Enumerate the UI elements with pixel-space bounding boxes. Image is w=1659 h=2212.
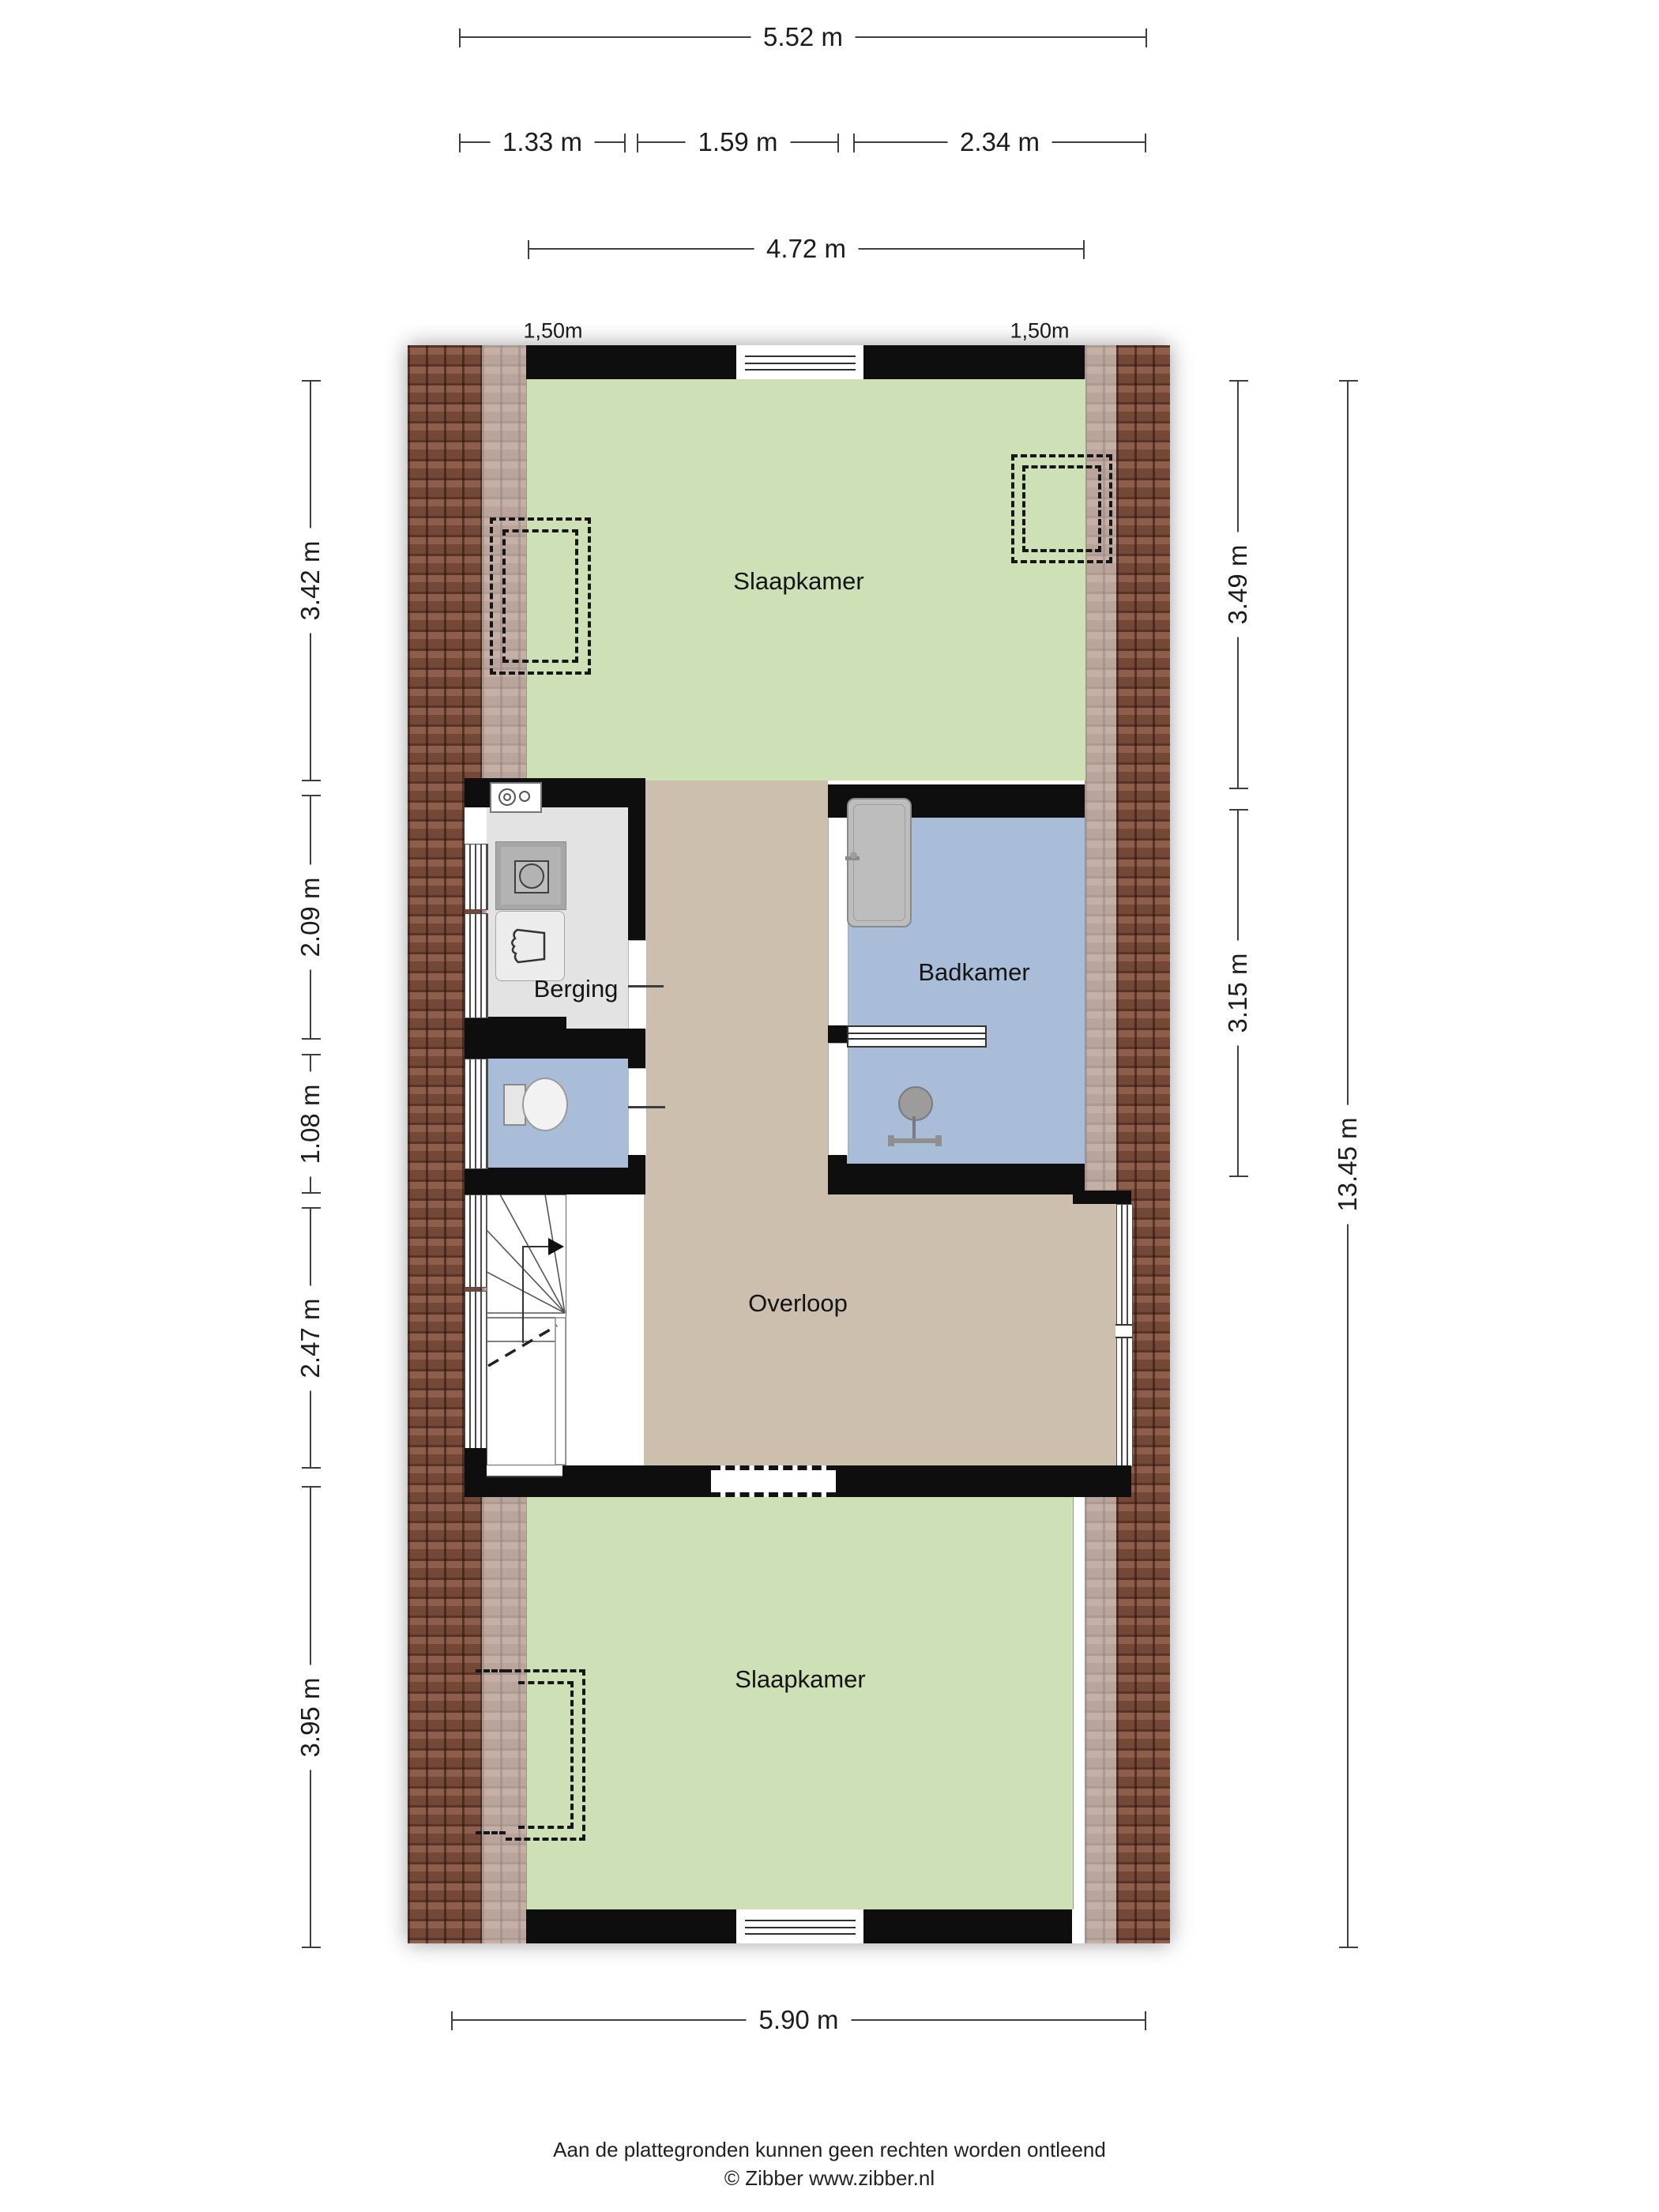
dimension-top-seg2: 1.59 m — [637, 141, 839, 143]
door-swing-line — [628, 1106, 665, 1108]
wall-bottom-right — [863, 1909, 1072, 1943]
dormer-dashed-outline — [518, 1681, 574, 1829]
laundry-basket-icon — [495, 911, 565, 981]
footer-disclaimer: Aan de plattegronden kunnen geen rechten… — [0, 2138, 1659, 2162]
dormer-dashed-outline — [502, 529, 578, 663]
room-landing-bay — [828, 1194, 1118, 1465]
dimension-right-total: 13.45 m — [1347, 380, 1349, 1948]
window-icon — [465, 1291, 488, 1450]
wall-bathroom-left-stub — [828, 1025, 847, 1043]
dimension-bottom: 5.90 m — [451, 2019, 1146, 2021]
dimension-left-2: 2.09 m — [310, 795, 311, 1040]
wall-left-corner — [465, 1448, 487, 1497]
dimension-left-3: 1.08 m — [310, 1054, 311, 1194]
room-label-landing: Overloop — [748, 1289, 848, 1318]
room-landing-main — [644, 781, 828, 1465]
height-mark-right: 1,50m — [1010, 319, 1069, 344]
window-glass — [745, 355, 856, 371]
dormer-dashed-outline — [1022, 465, 1101, 552]
room-label-bathroom: Badkamer — [918, 958, 1029, 987]
footer-copyright: © Zibber www.zibber.nl — [0, 2166, 1659, 2191]
dimension-label: 5.52 m — [750, 21, 856, 54]
dimension-top-seg1: 1.33 m — [459, 141, 626, 143]
stairs-icon — [487, 1194, 566, 1465]
shower-faucet-icon — [891, 1138, 937, 1143]
wall-bathroom-bottom — [828, 1164, 1085, 1194]
height-mark-left: 1,50m — [523, 319, 582, 344]
dimension-left-5: 3.95 m — [310, 1486, 311, 1948]
window-icon — [736, 1909, 863, 1943]
dimension-top-seg3: 2.34 m — [853, 141, 1146, 143]
dimension-label: 3.49 m — [1221, 532, 1255, 638]
dimension-label: 3.42 m — [294, 529, 327, 634]
dimension-label: 3.95 m — [294, 1665, 327, 1770]
dimension-label: 13.45 m — [1331, 1104, 1364, 1224]
room-label-bedroom-top: Slaapkamer — [733, 567, 863, 596]
dimension-label: 2.09 m — [294, 865, 327, 970]
dimension-left-4: 2.47 m — [310, 1207, 311, 1469]
wall-stairs-top — [465, 1168, 645, 1194]
wall-wc-top-left — [465, 1017, 566, 1059]
shower-arm — [912, 1116, 916, 1138]
dimension-label: 1.08 m — [294, 1071, 327, 1176]
wall-wc-top-right — [566, 1029, 645, 1059]
floorplan-canvas: 5.52 m 1.33 m 1.59 m 2.34 m 4.72 m 1,50m… — [0, 0, 1659, 2212]
dimension-label: 5.90 m — [747, 2003, 852, 2037]
door-handle-icon — [850, 852, 857, 859]
wall-top-right — [863, 345, 1085, 379]
roof-tiles-right-dark — [1116, 345, 1170, 1943]
dormer-dash-tail — [476, 1831, 506, 1834]
room-label-storage: Berging — [534, 975, 619, 1003]
toilet-icon — [522, 1078, 568, 1131]
washing-machine-icon — [495, 841, 566, 910]
washer-connection-icon — [490, 782, 542, 813]
door-opening-wc — [628, 1068, 647, 1157]
dimension-label: 2.47 m — [294, 1285, 327, 1390]
window-icon — [465, 844, 488, 910]
opening-dashed-band — [711, 1465, 836, 1497]
shower-faucet-handle — [888, 1135, 894, 1146]
shower-drain-icon — [898, 1086, 933, 1121]
door-opening-bathroom — [828, 818, 848, 1025]
room-label-bedroom-bottom: Slaapkamer — [735, 1665, 865, 1694]
shower-screen — [828, 1043, 848, 1157]
door-swing-line — [628, 985, 664, 987]
washing-machine-drum — [519, 863, 544, 889]
roof-tiles-right-light — [1085, 345, 1116, 1943]
window-divider — [1115, 1324, 1132, 1338]
window-icon — [465, 1194, 488, 1288]
dimension-label: 3.15 m — [1221, 941, 1255, 1046]
window-icon — [736, 345, 863, 379]
room-bedroom-bottom — [526, 1497, 1074, 1909]
shower-faucet-handle — [935, 1135, 942, 1146]
wall-storage-right — [628, 807, 645, 940]
radiator-icon — [847, 1025, 987, 1048]
dimension-label: 1.33 m — [490, 126, 595, 159]
dimension-right-1: 3.49 m — [1237, 380, 1239, 789]
dimension-label: 1.59 m — [686, 126, 791, 159]
door-leaf-panel — [853, 804, 905, 921]
wall-bottom-left — [526, 1909, 736, 1943]
window-icon — [465, 1059, 488, 1169]
dimension-left-1: 3.42 m — [310, 380, 311, 781]
window-glass — [745, 1920, 856, 1935]
dimension-label: 4.72 m — [754, 232, 859, 265]
wall-left-gap — [465, 807, 487, 844]
dimension-right-2: 3.15 m — [1237, 809, 1239, 1177]
wall-bay-top-stub — [1073, 1191, 1131, 1204]
window-stairs-bottom — [487, 1465, 562, 1477]
dormer-dash-tail — [476, 1669, 506, 1672]
wall-top-left — [526, 345, 736, 379]
dimension-label: 2.34 m — [947, 126, 1052, 159]
dimension-top-total: 5.52 m — [459, 36, 1147, 38]
door-leaf-icon — [847, 798, 912, 927]
dimension-top-inner: 4.72 m — [528, 248, 1085, 250]
window-icon — [465, 913, 488, 1018]
wall-wc-right-a — [628, 1059, 645, 1068]
